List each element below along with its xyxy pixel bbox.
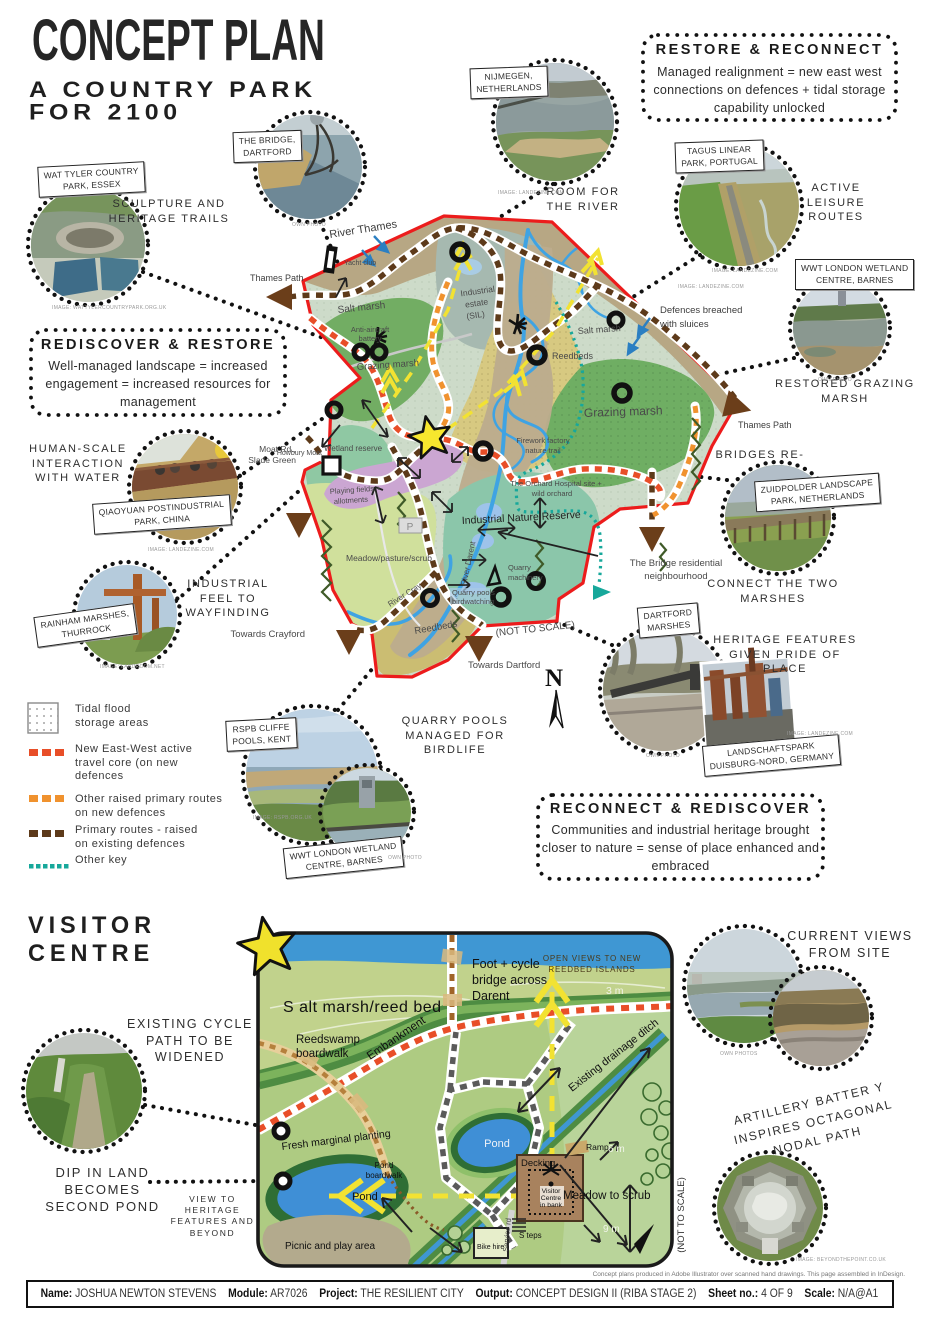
svg-text:N: N [545,665,563,692]
svg-text:battery: battery [359,334,382,343]
svg-text:with sluices: with sluices [659,319,709,330]
svg-text:Foot + cycle: Foot + cycle [472,957,540,971]
svg-text:P: P [407,522,414,533]
svg-text:in bank: in bank [540,1202,563,1209]
svg-text:boardwalk: boardwalk [296,1048,349,1060]
svg-text:The Bridge residential: The Bridge residential [630,558,722,569]
svg-text:nature trail: nature trail [525,446,561,455]
svg-text:Reedswamp: Reedswamp [296,1034,360,1046]
svg-text:9 m: 9 m [603,1224,620,1235]
svg-text:Howbury Moat: Howbury Moat [277,450,322,457]
svg-text:Quarry pools: Quarry pools [452,588,495,597]
svg-text:Towards Dartford: Towards Dartford [468,660,540,671]
svg-text:Ramp: Ramp [586,1142,609,1152]
svg-text:Centre: Centre [541,1195,562,1202]
svg-text:Quarry: Quarry [508,563,531,572]
svg-text:S teps: S teps [519,1231,542,1240]
svg-text:wild orchard: wild orchard [531,489,572,498]
svg-text:Picnic and play area: Picnic and play area [285,1241,375,1252]
svg-text:Reedbeds: Reedbeds [552,351,594,361]
svg-text:Grazing marsh: Grazing marsh [584,403,663,420]
svg-text:Yacht club: Yacht club [344,260,376,267]
svg-text:Darent: Darent [472,989,510,1003]
svg-text:Pond: Pond [352,1191,378,1203]
svg-text:3 m: 3 m [606,985,624,997]
svg-text:machinery: machinery [508,573,543,582]
svg-text:REEDBED ISLANDS: REEDBED ISLANDS [548,965,635,974]
svg-text:The Orchard Hospital site +: The Orchard Hospital site + [510,479,602,488]
svg-text:Pond: Pond [484,1138,510,1150]
svg-text:S alt marsh/reed bed: S alt marsh/reed bed [283,999,442,1016]
svg-text:bridge across: bridge across [472,973,547,987]
svg-text:Pond: Pond [375,1161,394,1170]
svg-text:Meadow/pasture/scrub: Meadow/pasture/scrub [346,553,432,563]
svg-text:(NOT TO SCALE): (NOT TO SCALE) [676,1177,687,1253]
svg-text:birdwatching: birdwatching [452,597,494,606]
svg-text:boardwalk: boardwalk [366,1171,403,1180]
svg-text:Visitor: Visitor [542,1188,561,1195]
svg-text:6 m: 6 m [608,1144,625,1155]
svg-text:Towards Crayford: Towards Crayford [231,629,305,640]
svg-text:Defences breached: Defences breached [660,305,742,316]
svg-text:Meadow to scrub: Meadow to scrub [563,1190,651,1202]
svg-text:River Thames: River Thames [329,218,399,241]
svg-text:Firework factory: Firework factory [516,436,570,445]
svg-text:Thames Path: Thames Path [738,420,792,430]
svg-text:Thames Path: Thames Path [250,273,304,283]
svg-text:Decking: Decking [521,1158,555,1169]
svg-text:OPEN VIEWS TO NEW: OPEN VIEWS TO NEW [543,954,641,963]
svg-text:Wetland reserve: Wetland reserve [324,444,383,453]
svg-text:Anti-aircraft: Anti-aircraft [351,325,390,334]
